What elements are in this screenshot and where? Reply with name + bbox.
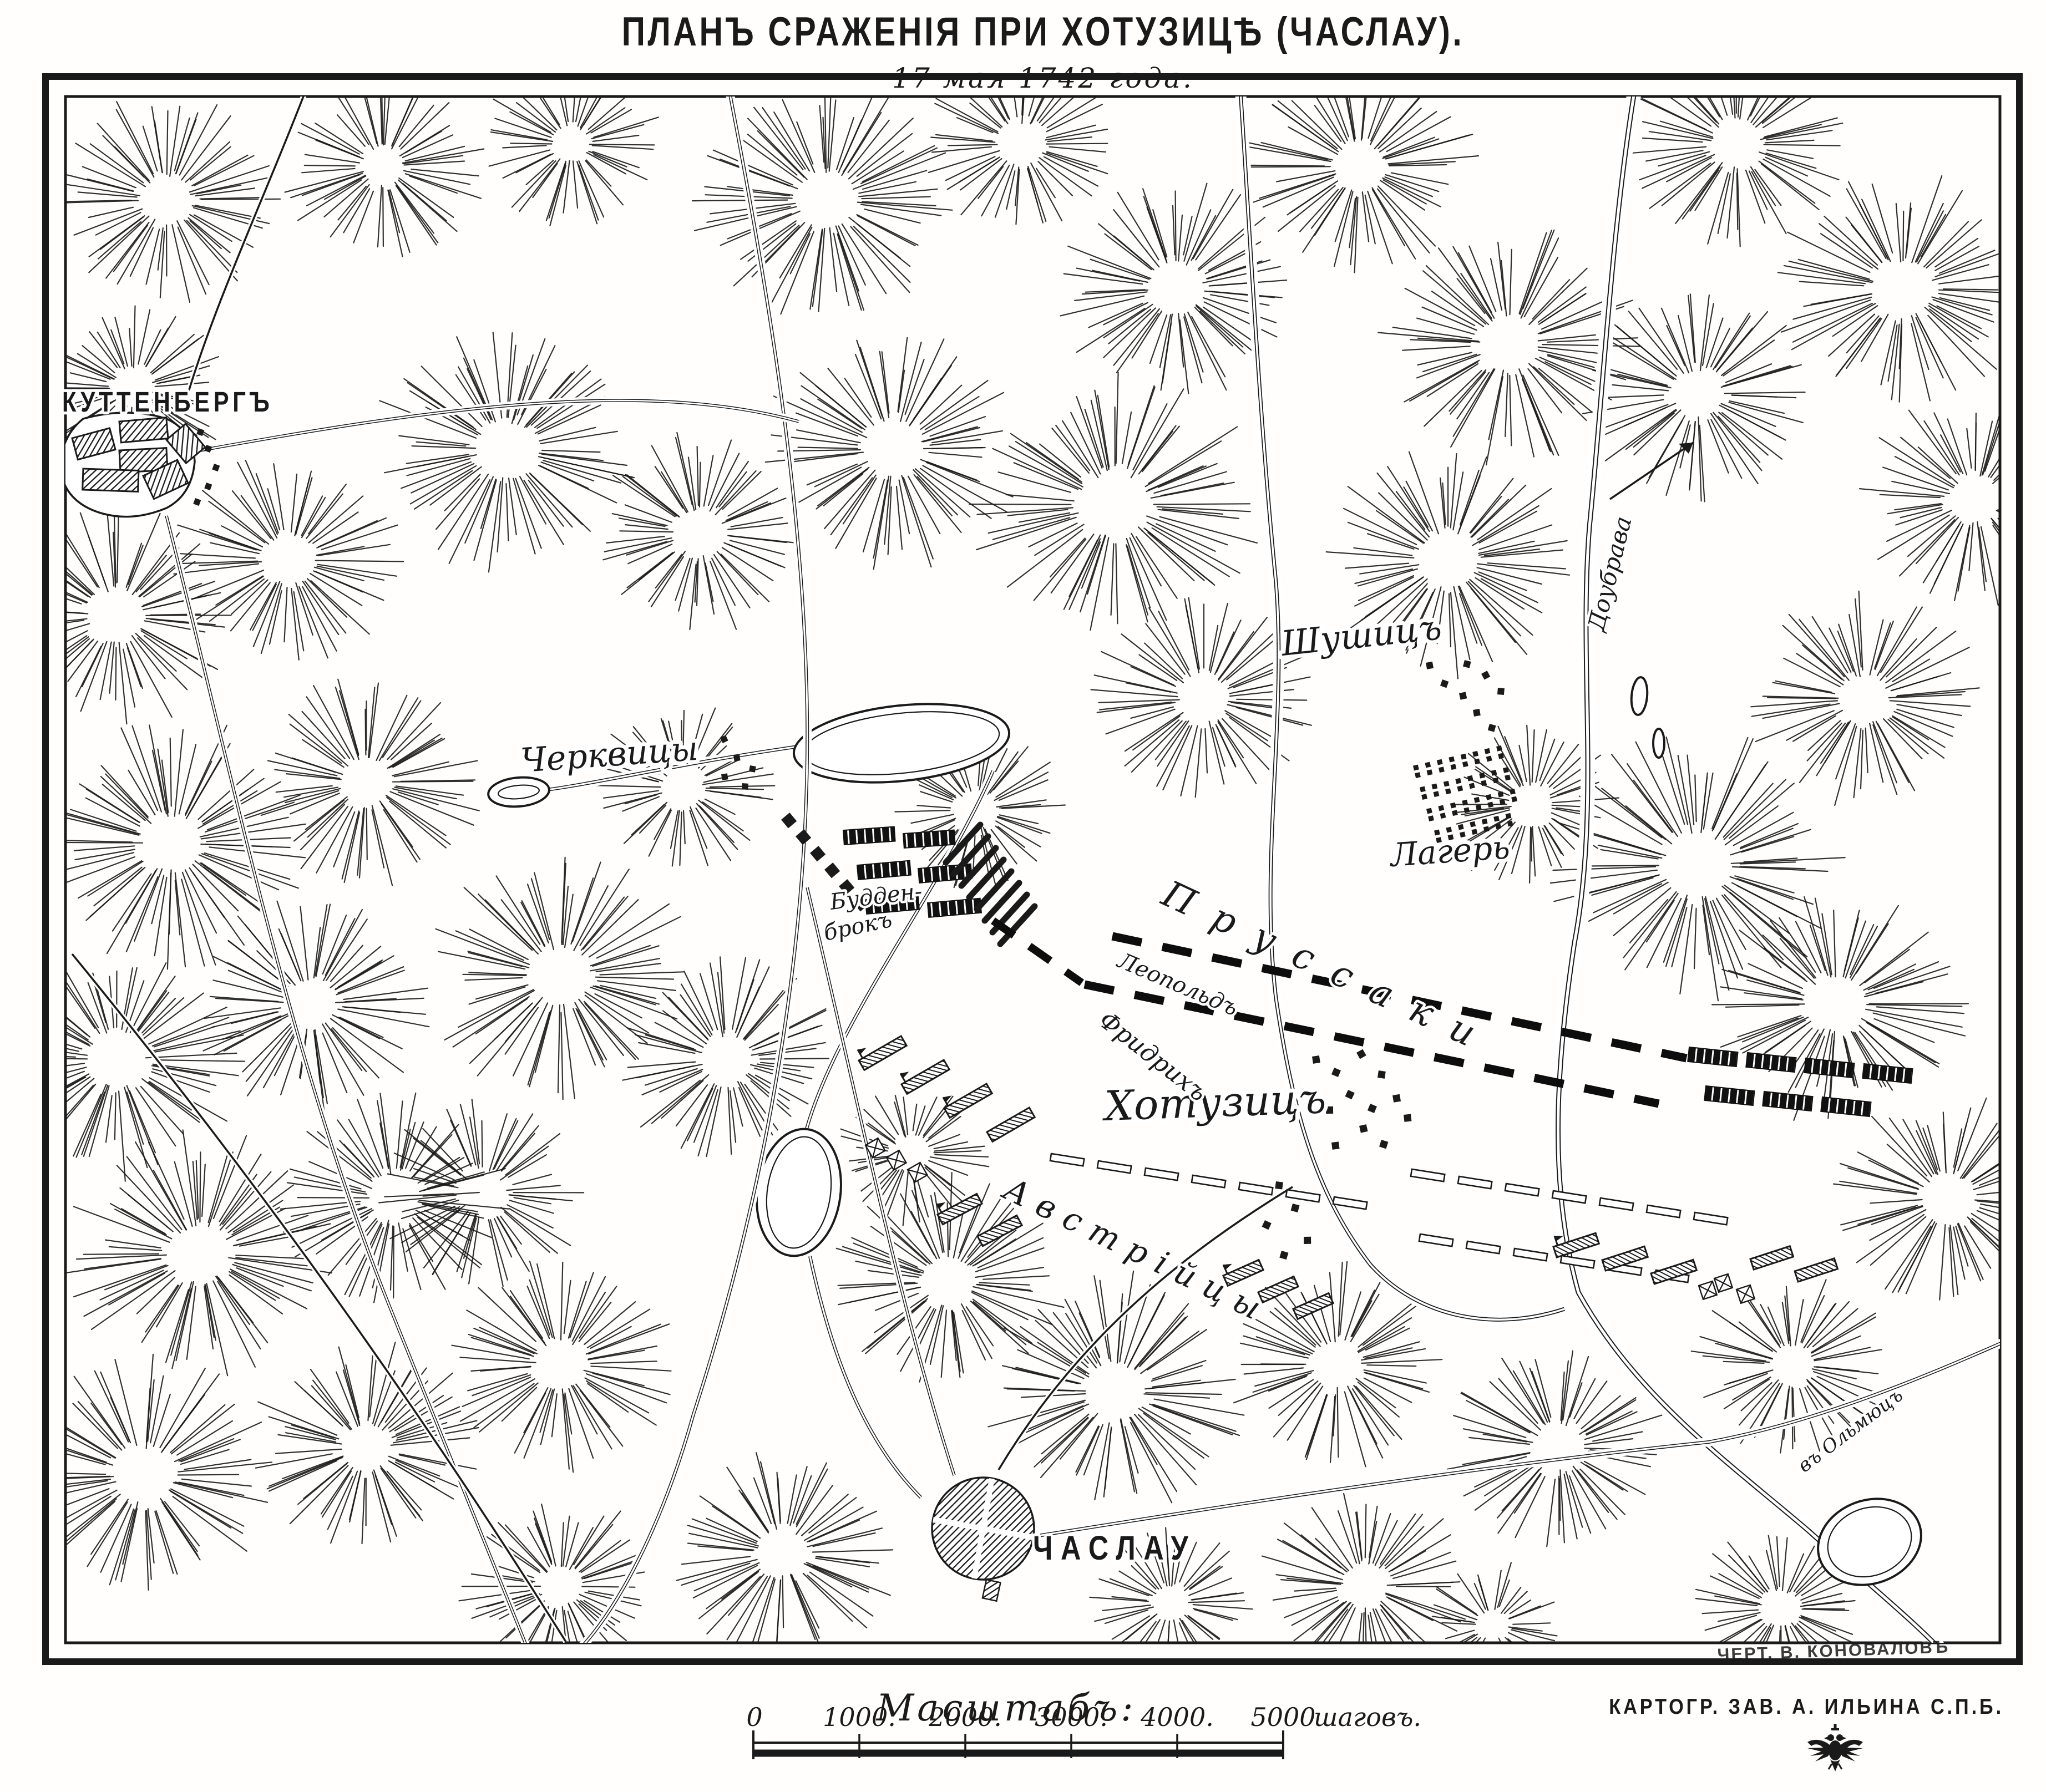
scale-tick-1000: 1000. [823, 1702, 896, 1732]
publisher-text: КАРТОГР. ЗАВ. А. ИЛЬИНА С.П.Б. [1609, 1694, 2004, 1718]
battle-map-canvas: ПЛАНЪ СРАЖЕНІЯ ПРИ ХОТУЗИЦѢ (ЧАСЛАУ). 17… [0, 0, 2046, 1792]
scale-tick-4000: 4000. [1140, 1702, 1214, 1732]
camp-label: Лагерь [1387, 828, 1511, 874]
village-label-khotuzitz: Хотузицъ [1101, 1075, 1327, 1130]
scale-tick-0: 0 [746, 1702, 762, 1732]
page-subtitle: 17 мая 1742 года. [892, 62, 1194, 94]
town-symbols-layer [60, 413, 1034, 1601]
scale-tick-3000: 3000. [1035, 1702, 1108, 1732]
publisher-credit: КАРТОГР. ЗАВ. А. ИЛЬИНА С.П.Б. [1609, 1694, 2004, 1771]
scale-tick-labels: 0 1000. 2000. 3000. 4000. 5000 шаговъ. [746, 1702, 1421, 1732]
scale-bar: Масштабъ: 0 1000. 2000. 3000. 4000. 5000… [746, 1687, 1421, 1759]
double-headed-eagle-icon [1807, 1724, 1863, 1771]
map-outer-frame [45, 77, 2019, 1662]
scale-tick-2000: 2000. [928, 1702, 1002, 1732]
town-label-kuttenberg: КУТТЕНБЕРГЪ [62, 386, 274, 418]
village-label-cherkvitsy: Черквицы [519, 729, 700, 780]
scale-tick-5000: 5000 [1250, 1702, 1315, 1732]
force-label-prussians: Пруссаки [1155, 872, 1502, 1064]
town-label-czaslau: ЧАСЛАУ [1033, 1529, 1196, 1567]
scale-unit-label: шаговъ. [1314, 1702, 1421, 1732]
page-title: ПЛАНЪ СРАЖЕНІЯ ПРИ ХОТУЗИЦѢ (ЧАСЛАУ). [622, 9, 1465, 54]
terrain-hachure-layer [0, 37, 2046, 1693]
village-label-shushitz: Шушицъ [1279, 607, 1444, 664]
map-document: ПЛАНЪ СРАЖЕНІЯ ПРИ ХОТУЗИЦѢ (ЧАСЛАУ). 17… [0, 0, 2046, 1792]
